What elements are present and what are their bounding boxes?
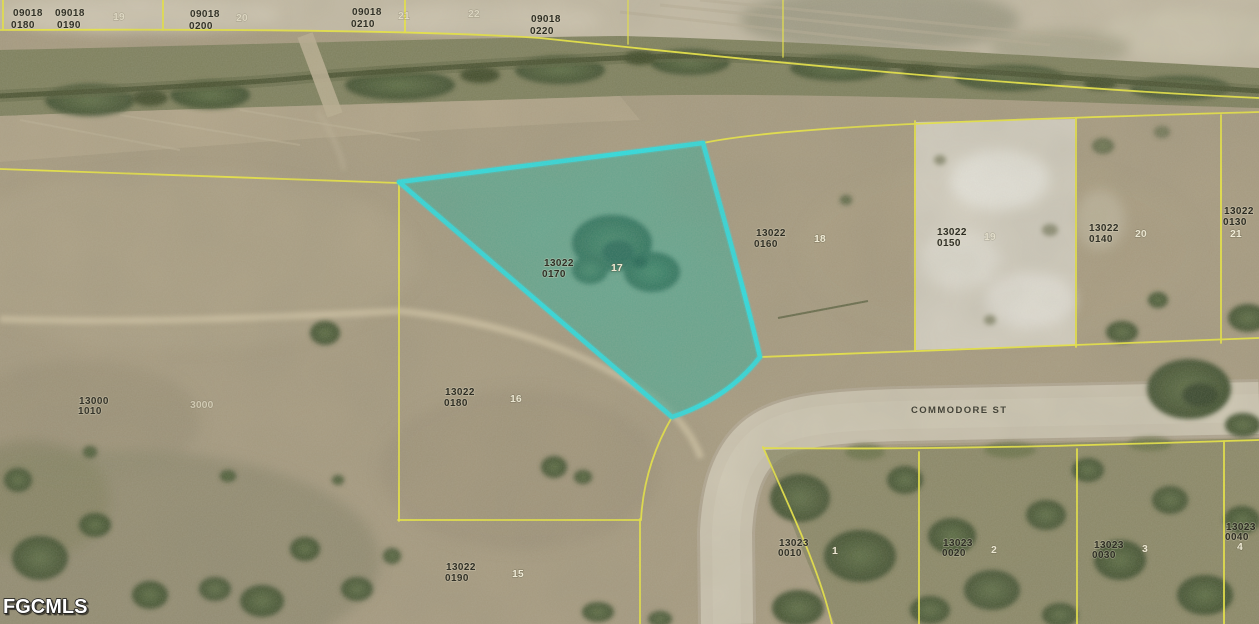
aerial-map[interactable]: 09018 0180 09018 0190 19 09018 0200 20 0… [0,0,1259,624]
aerial-map-canvas: 09018 0180 09018 0190 19 09018 0200 20 0… [0,0,1259,624]
mls-watermark: FGCMLS [3,596,87,618]
photo-grain-overlay [0,0,1259,624]
